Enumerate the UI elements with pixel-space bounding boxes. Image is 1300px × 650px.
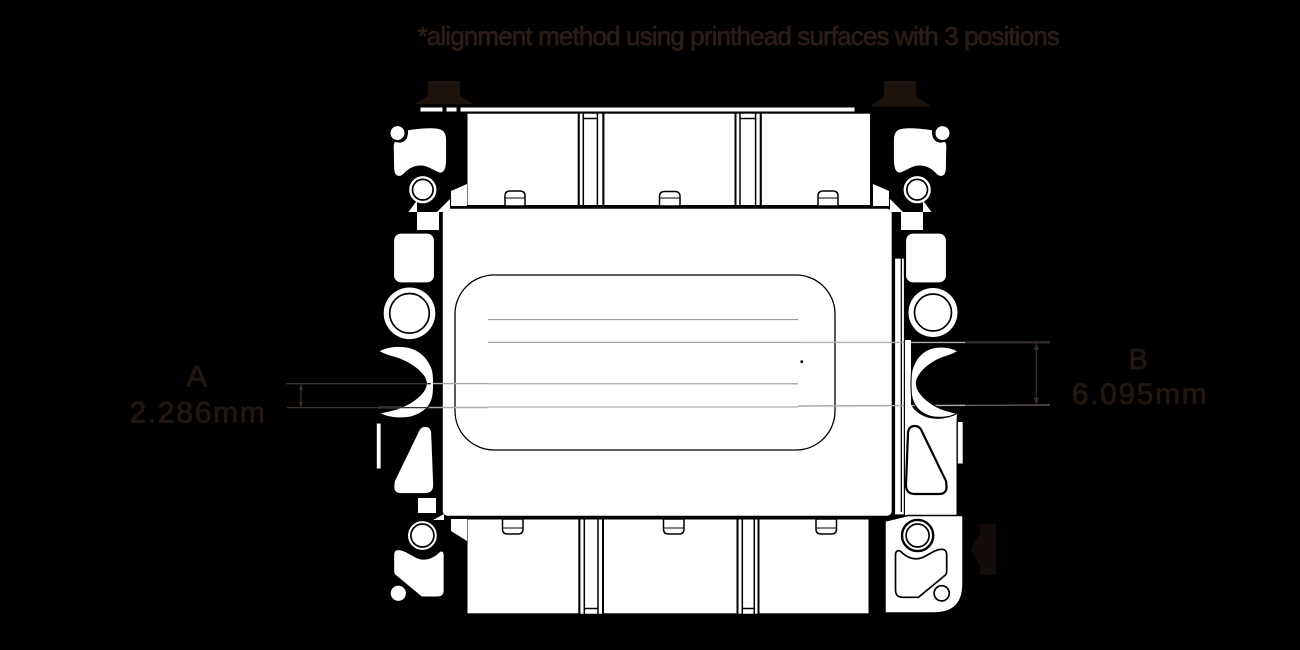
- svg-text:A: A: [187, 358, 208, 393]
- svg-text:*alignment method using printh: *alignment method using printhead surfac…: [418, 21, 1060, 51]
- svg-text:B: B: [1129, 344, 1148, 376]
- svg-text:6.095mm: 6.095mm: [1072, 378, 1209, 411]
- svg-text:2.286mm: 2.286mm: [130, 396, 267, 429]
